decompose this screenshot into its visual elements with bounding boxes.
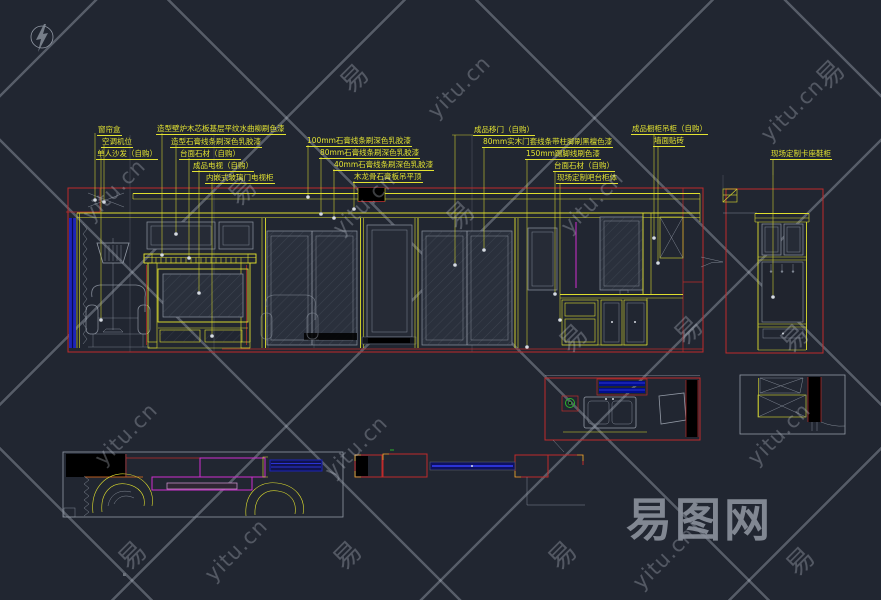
label-wall-cabinet: 成品橱柜吊柜（自购） — [631, 124, 708, 135]
label-tv-cabinet: 内嵌式玻璃门电视柜 — [205, 173, 275, 184]
section-detail-strip — [355, 450, 585, 505]
detail-plan-right — [740, 375, 845, 434]
middle-door-panel — [362, 218, 418, 348]
label-molding-80: 80mm石膏线条刷深色乳胶漆 — [319, 148, 420, 159]
curtain — [69, 213, 87, 348]
stray-mark — [123, 573, 126, 576]
label-single-sofa: 单人沙发（自购） — [96, 149, 158, 160]
label-fireplace-finish: 造型壁炉木芯板基层平纹水曲柳刷色漆 — [156, 124, 286, 135]
fireplace-tv-cabinet — [144, 254, 256, 348]
kitchen-plan — [545, 376, 700, 453]
label-ac-position: 空调机位 — [101, 137, 133, 148]
label-ceiling: 木龙骨石膏板吊平顶 — [353, 172, 423, 183]
label-shoe-cabinet: 现场定制卡座鞋柜 — [770, 149, 832, 160]
label-plaster-molding: 造型石膏线条刷深色乳胶漆 — [170, 137, 262, 148]
label-molding-40: 40mm石膏线条刷深色乳胶漆 — [333, 160, 434, 171]
plan-armchair-1 — [93, 474, 153, 513]
label-tv: 成品电视（自购） — [192, 161, 254, 172]
armchair-left — [86, 285, 150, 347]
plan-armchair-2 — [246, 483, 304, 516]
label-skirting: 150mm踢脚线刷色漆 — [525, 149, 601, 160]
label-bar-cabinet: 现场定制吧台柜体 — [556, 173, 618, 184]
label-curtain-box: 窗帘盒 — [97, 125, 122, 136]
logo-mark-icon — [31, 24, 53, 52]
label-wall-tile: 墙面贴砖 — [653, 136, 685, 147]
glass-door-right — [422, 218, 518, 348]
main-elevation — [66, 188, 703, 352]
wall-panels — [147, 222, 253, 249]
cad-drawing — [0, 0, 881, 600]
label-counter-stone-r: 台面石材（自购） — [553, 161, 615, 172]
floor-plan-left — [63, 452, 343, 517]
bar-kitchen-zone — [528, 213, 683, 345]
label-sliding-door: 成品移门（自购） — [473, 125, 535, 136]
label-molding-100: 100mm石膏线条刷深色乳胶漆 — [306, 136, 412, 147]
label-counter-stone-l: 台面石材（自购） — [179, 149, 241, 160]
entry-elevation — [701, 189, 823, 353]
glass-door-left — [262, 218, 364, 348]
cad-screenshot-canvas: 窗帘盒 空调机位 单人沙发（自购） 造型壁炉木芯板基层平纹水曲柳刷色漆 造型石膏… — [0, 0, 881, 600]
label-door-casing: 80mm实木门套线条带柱脚刷黑檀色漆 — [482, 137, 613, 148]
